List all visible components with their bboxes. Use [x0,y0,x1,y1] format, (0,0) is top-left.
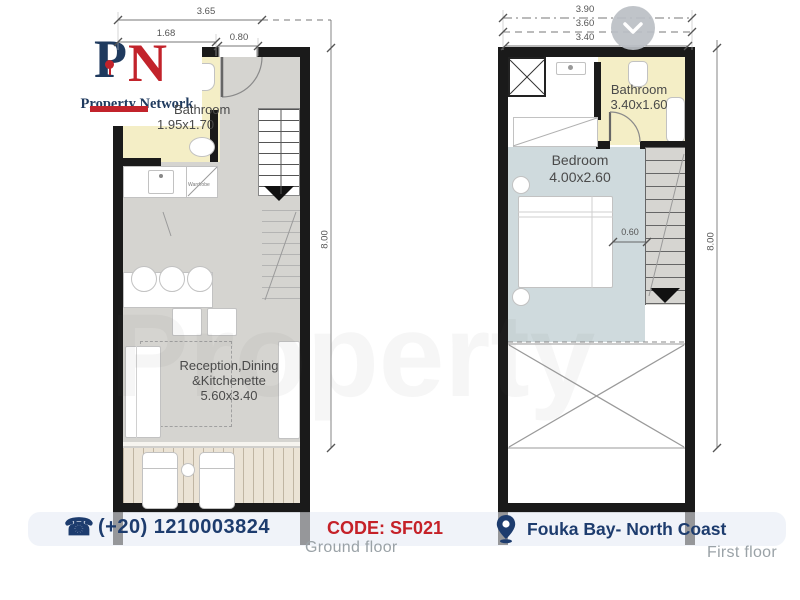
reception-label: Reception,Dining &Kitchenette 5.60x3.40 [143,358,315,403]
dim-ground-width-left: 1.68 [146,28,186,39]
dim-ground-door: 0.80 [221,32,257,43]
dining-chair [172,308,202,336]
ground-bathroom-size: 1.95x1.70 [157,117,214,132]
first-stairs-arrow [650,288,680,303]
ground-bathroom-label: Bathroom [174,102,230,117]
lounger-backrest-line [142,468,178,469]
bar-stool [187,266,213,292]
plant-decor [512,288,530,306]
reception-size: 5.60x3.40 [143,388,315,403]
dim-ground-width-total: 3.65 [186,6,226,17]
first-stairs [645,147,685,305]
footer-phone: (+20) 1210003824 [98,516,270,539]
location-pin-icon [495,514,517,544]
bathroom-sink [189,137,215,157]
first-floor-caption: First floor [707,544,777,562]
footer-location: Fouka Bay- North Coast [527,519,726,540]
kitchen-faucet [159,174,163,178]
dim-first-width-mid: 3.60 [565,18,605,29]
dim-ground-depth: 8.00 [320,225,331,255]
entrance-door-opening [219,45,257,57]
bedroom-name: Bedroom [520,152,640,169]
reception-line2: &Kitchenette [143,373,315,388]
dim-bed-clearance: 0.60 [612,227,648,237]
logo-letter-n: N [128,36,167,90]
lounger [199,452,235,509]
ground-stairs-arrow [264,186,294,201]
logo-letter-p: P [94,32,127,86]
phone-icon: ☎ [64,513,94,542]
first-bathroom-name: Bathroom [596,82,682,97]
first-bathroom-size: 3.40x1.60 [596,97,682,112]
dining-chair [207,308,237,336]
side-table [181,463,195,477]
first-bathroom-label: Bathroom 3.40x1.60 [596,82,682,112]
bed [518,196,613,288]
ground-bathroom-wall [123,158,161,166]
scroll-down-button[interactable] [611,6,655,50]
ground-stairs-upper [258,108,300,196]
bedroom-label: Bedroom 4.00x2.60 [520,152,640,186]
bedroom-size: 4.00x2.60 [520,169,640,186]
lounger [142,452,178,509]
dim-first-depth: 8.00 [706,227,717,257]
wardrobe-label: Wardrobe [188,178,218,193]
ground-stairs-lower [262,210,300,302]
bar-stool [131,266,157,292]
logo-pin-stem [109,68,111,75]
chevron-down-icon [622,21,644,35]
shaft-box [508,57,546,97]
void-open-below [508,344,685,448]
lounger-backrest-line [199,468,235,469]
sofa-seat-line [136,346,137,438]
vanity-faucet [568,65,573,70]
wardrobe [513,117,598,147]
footer-bar: ☎ (+20) 1210003824 CODE: SF021 Fouka Bay… [28,512,786,546]
reception-line1: Reception,Dining [143,358,315,373]
dim-first-width-inner: 3.40 [565,32,605,43]
bar-stool [159,266,185,292]
first-bathroom-wall-left [596,141,610,149]
logo-tagline-bar [90,106,148,112]
footer-code: CODE: SF021 [327,518,443,539]
floorplan-page: Wardrobe [0,0,800,600]
ground-floor-caption: Ground floor [305,539,398,557]
dim-first-width-total: 3.90 [565,4,605,15]
